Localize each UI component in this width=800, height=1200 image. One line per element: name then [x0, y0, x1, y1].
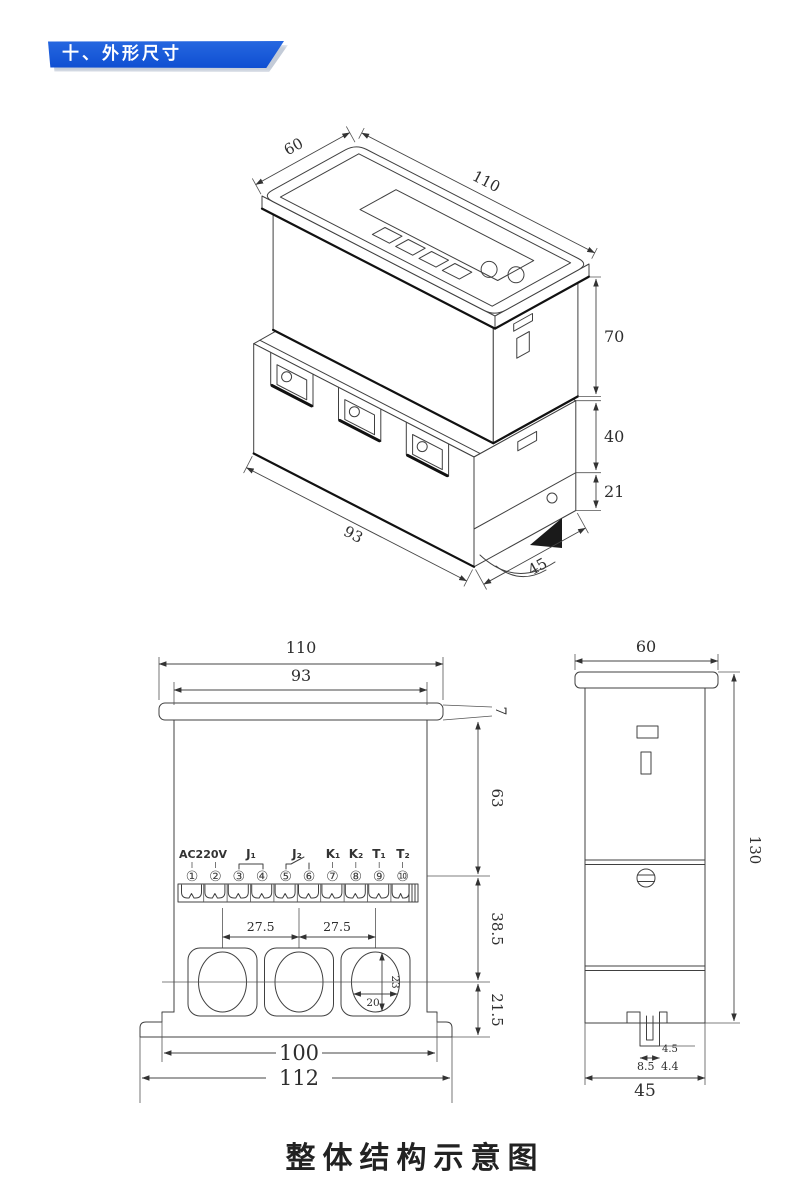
terminal-clamp-strip	[178, 884, 418, 902]
front-view: AC220V J₁ J₂ K₁ K₂ T₁ T₂ ① ② ③ ④ ⑤ ⑥ ⑦	[140, 638, 508, 1103]
dim-front-cap-width: 110	[286, 638, 317, 657]
terminal-10: ⑩	[396, 869, 409, 885]
dim-side-height: 130	[746, 836, 764, 865]
isometric-view: 60 110 70 40 21 93 45	[244, 126, 625, 589]
dim-iso-upper-height: 70	[604, 327, 624, 346]
dim-iso-top-depth: 60	[281, 134, 306, 159]
page: 十、外形尺寸	[0, 0, 800, 1200]
dim-front-feet-span: 100	[279, 1041, 319, 1065]
dim-front-h-mid: 38.5	[488, 912, 506, 945]
front-cap	[159, 703, 443, 720]
dim-front-h-top: 63	[488, 788, 506, 807]
dim-iso-mid-height: 40	[604, 427, 624, 446]
dim-side-depth: 60	[636, 637, 656, 656]
din-rail-clip	[585, 1012, 705, 1046]
terminal-6: ⑥	[303, 869, 316, 885]
dim-front-overall-width: 112	[279, 1066, 319, 1090]
dim-front-cap-thickness: 7	[492, 707, 508, 716]
terminal-label-j1: J₁	[245, 847, 256, 861]
terminal-label-ac220v: AC220V	[179, 848, 228, 861]
dim-front-pitch-a: 27.5	[247, 919, 275, 934]
terminal-5: ⑤	[279, 869, 292, 885]
dim-front-h-bottom: 21.5	[488, 993, 506, 1026]
terminal-label-k2: K₂	[349, 847, 364, 861]
terminal-numbers: ① ② ③ ④ ⑤ ⑥ ⑦ ⑧ ⑨ ⑩	[186, 869, 409, 885]
terminal-labels: AC220V J₁ J₂ K₁ K₂ T₁ T₂	[179, 847, 410, 861]
dim-side-clip-inner: 4.4	[661, 1060, 679, 1073]
terminal-label-k1: K₁	[326, 847, 341, 861]
terminal-8: ⑧	[350, 869, 363, 885]
terminal-label-t1: T₁	[372, 847, 385, 861]
side-cap	[575, 672, 718, 688]
terminal-9: ⑨	[373, 869, 386, 885]
terminal-4: ④	[256, 869, 269, 885]
terminal-3: ③	[233, 869, 246, 885]
dim-iso-base-length: 93	[341, 522, 366, 547]
dim-front-hole-w: 20	[366, 997, 379, 1009]
terminal-2: ②	[209, 869, 222, 885]
side-view: 60 130 4.5 8.5 4.4 45	[575, 637, 764, 1101]
side-screw	[637, 869, 655, 887]
dim-front-pitch-b: 27.5	[323, 919, 351, 934]
dim-iso-top-length: 110	[469, 167, 503, 196]
figure-caption: 整体结构示意图	[286, 1141, 545, 1176]
terminal-7: ⑦	[326, 869, 339, 885]
terminal-label-t2: T₂	[396, 847, 409, 861]
dim-front-hole-h: 23	[389, 975, 401, 988]
dim-side-bottom-depth: 45	[634, 1081, 656, 1101]
outline-dimension-drawing: 60 110 70 40 21 93 45	[0, 0, 800, 1200]
dim-side-clip-w: 8.5	[637, 1060, 655, 1073]
dim-front-body-width: 93	[291, 666, 311, 685]
side-dimensions: 60 130 4.5 8.5 4.4 45	[575, 637, 764, 1101]
side-label-window	[637, 726, 658, 738]
terminal-1: ①	[186, 869, 199, 885]
dim-iso-rail-height: 21	[604, 482, 624, 501]
side-slot	[641, 752, 651, 774]
dim-iso-base-depth: 45	[525, 554, 550, 579]
dim-side-slot-depth: 4.5	[662, 1044, 678, 1055]
